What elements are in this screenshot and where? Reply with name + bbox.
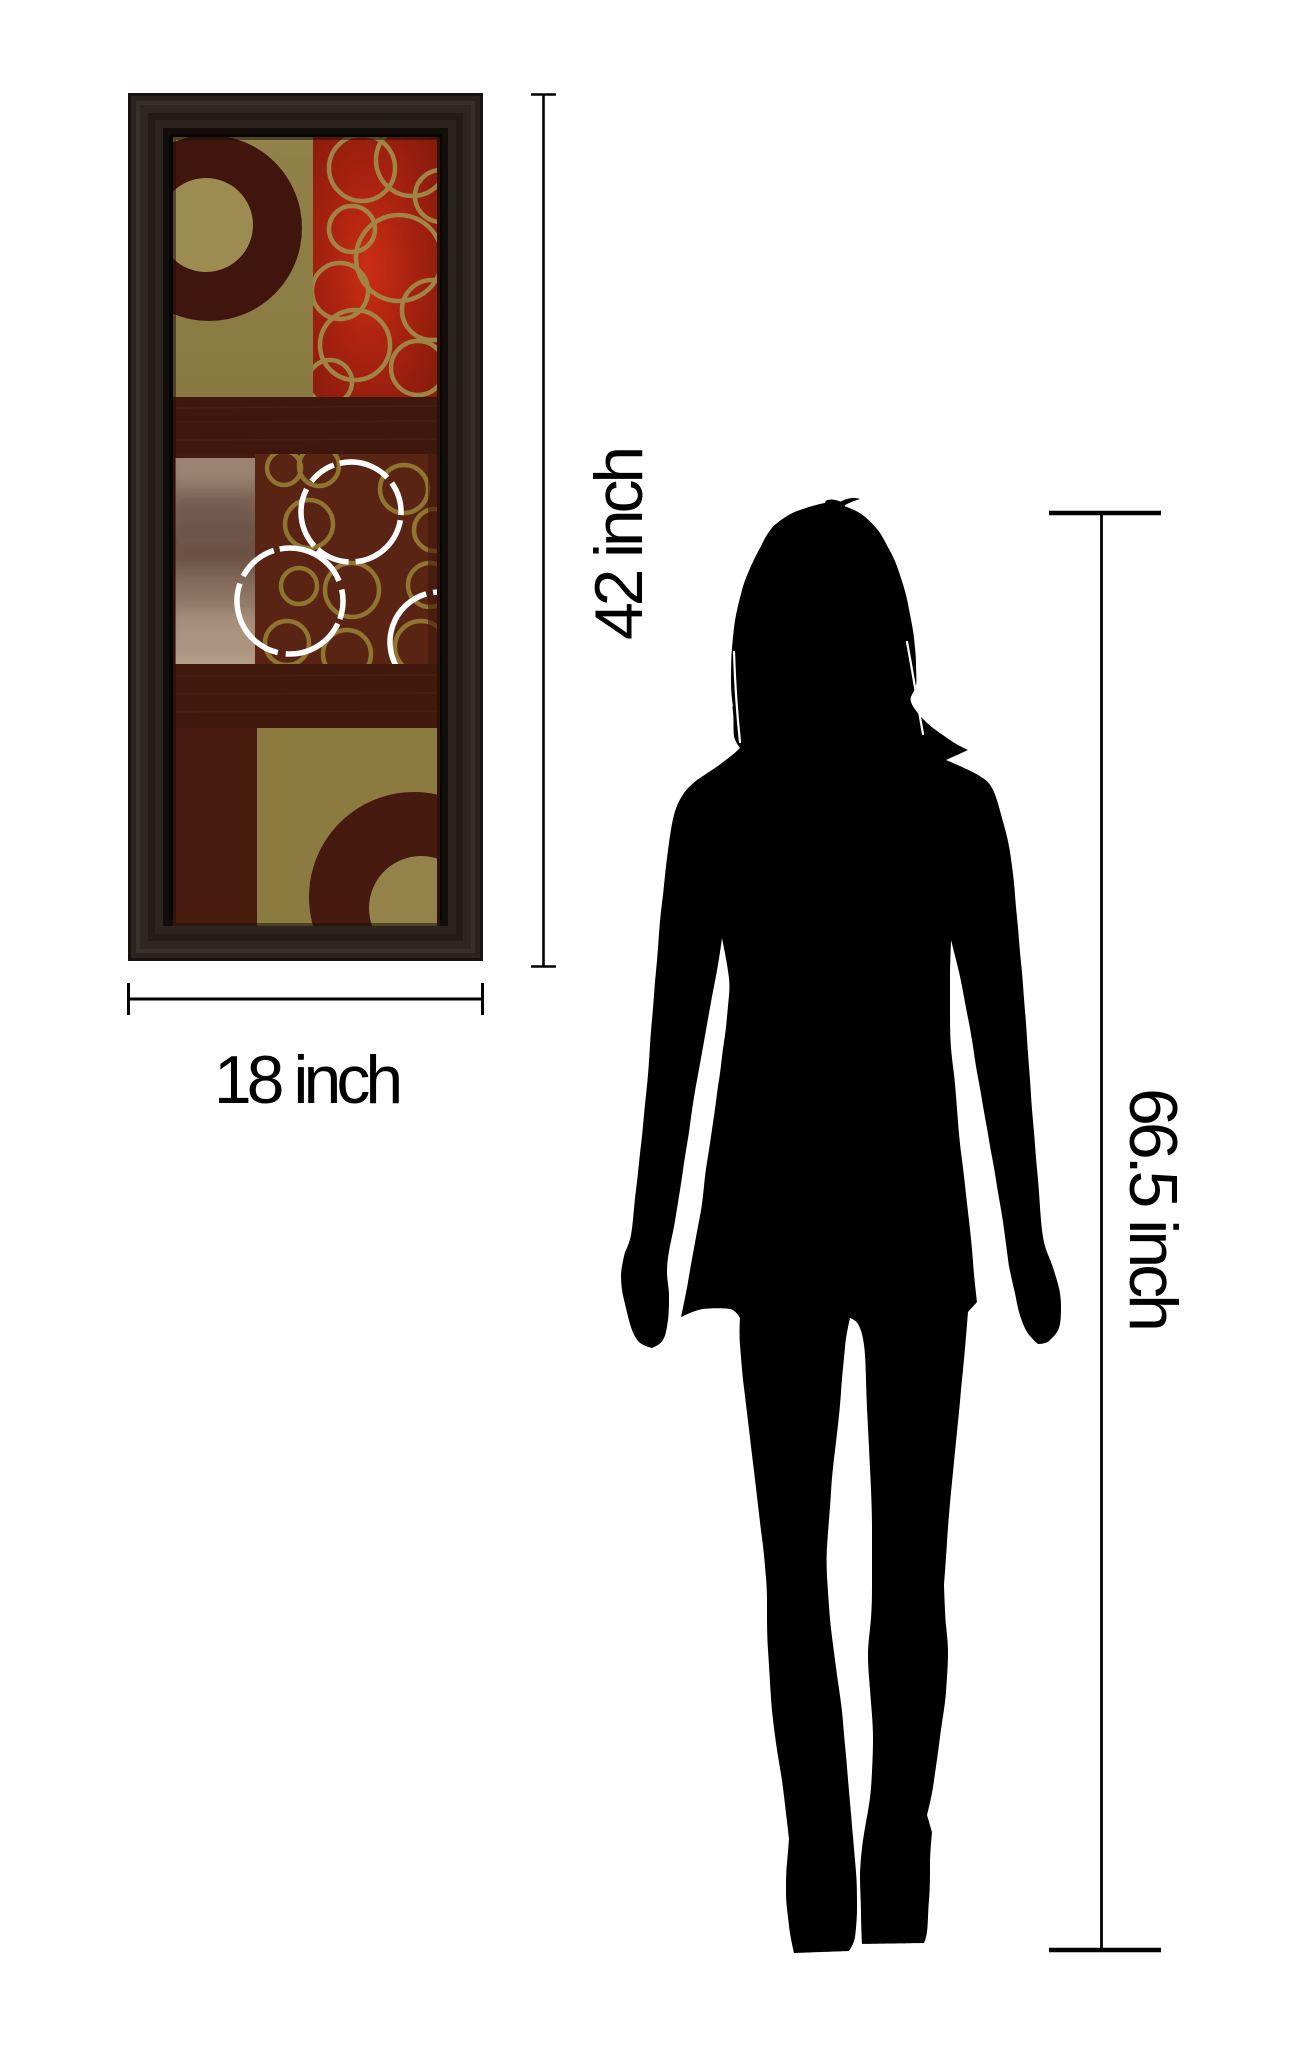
svg-text:42 inch: 42 inch: [581, 450, 657, 640]
svg-text:66.5 inch: 66.5 inch: [1115, 1088, 1191, 1328]
svg-text:18 inch: 18 inch: [214, 1042, 399, 1118]
